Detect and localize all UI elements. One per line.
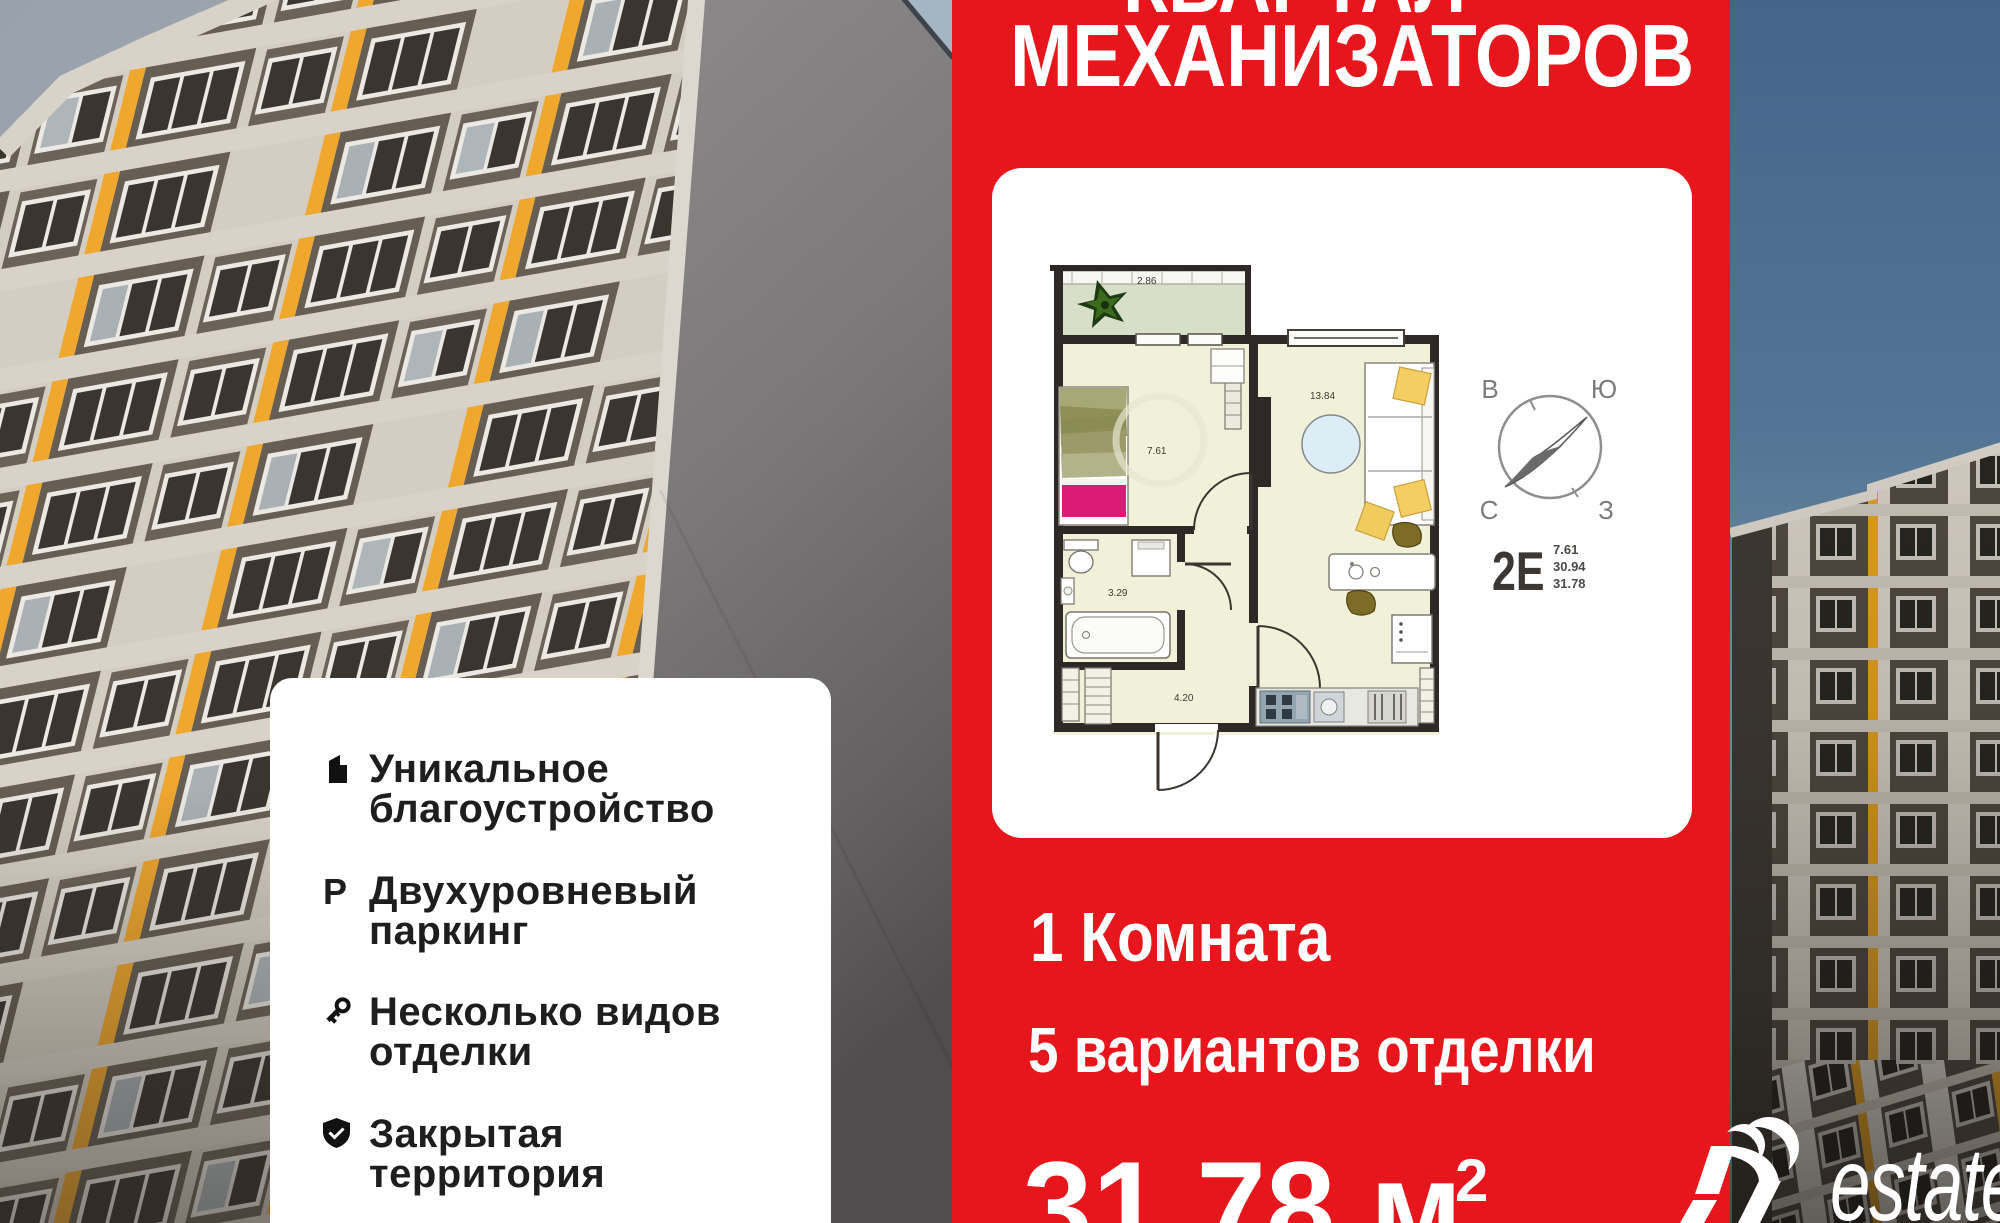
- svg-text:7.61: 7.61: [1147, 446, 1167, 457]
- svg-text:31.78: 31.78: [1553, 576, 1586, 591]
- svg-text:4.20: 4.20: [1174, 693, 1194, 704]
- svg-text:В: В: [1481, 374, 1498, 404]
- svg-text:30.94: 30.94: [1553, 559, 1586, 574]
- svg-text:2Е: 2Е: [1492, 541, 1544, 602]
- svg-text:Ю: Ю: [1591, 374, 1617, 404]
- svg-text:С: С: [1480, 495, 1499, 525]
- svg-text:2.86: 2.86: [1137, 276, 1157, 287]
- svg-text:13.84: 13.84: [1310, 391, 1335, 402]
- svg-text:7.61: 7.61: [1553, 542, 1578, 557]
- svg-text:З: З: [1598, 495, 1614, 525]
- svg-text:estate: estate: [1830, 1127, 2000, 1223]
- svg-text:3.29: 3.29: [1108, 588, 1128, 599]
